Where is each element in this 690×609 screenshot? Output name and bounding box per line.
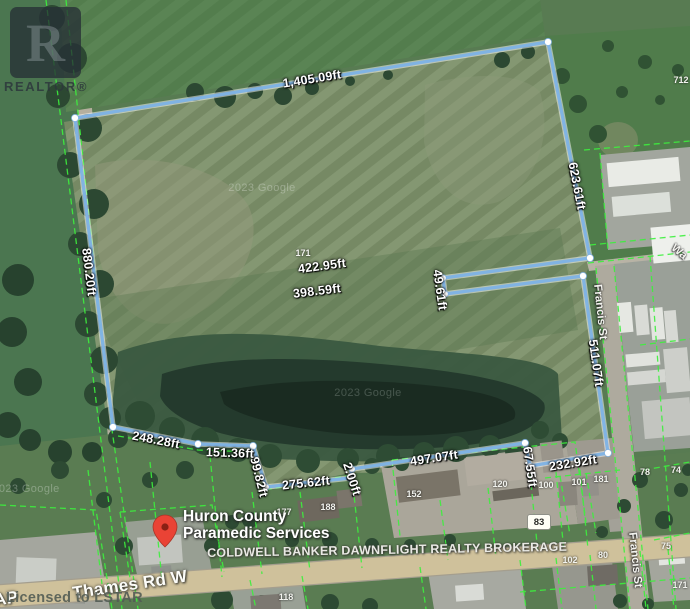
license-watermark: Licensed to LSTAR	[6, 590, 143, 606]
lot-number-field: 171	[295, 248, 310, 258]
realtor-logo: R	[10, 7, 81, 78]
lot-number: 101	[571, 477, 586, 487]
route-shield-number: 83	[534, 517, 545, 528]
measurement-south-small: 151.36ft	[206, 445, 255, 461]
lot-number: 181	[593, 474, 608, 484]
poi-name-line2: Paramedic Services	[183, 526, 330, 543]
route-shield: 83	[527, 514, 551, 530]
satellite-listing-map[interactable]: 1,405.09ft 623.61ft 880.20ft 422.95ft 39…	[0, 0, 690, 609]
lot-number: 78	[640, 467, 650, 477]
google-watermark: 2023 Google	[228, 182, 295, 194]
realtor-logo-letter: R	[26, 16, 65, 70]
lot-number: 80	[598, 550, 608, 560]
lot-number: 75	[661, 541, 671, 551]
google-watermark: 2023 Google	[334, 387, 401, 399]
poi-name-line1: Huron County	[183, 509, 330, 526]
map-canvas[interactable]	[0, 0, 690, 609]
lot-number: 74	[671, 465, 681, 475]
lot-number: 100	[538, 480, 553, 490]
lot-number: 118	[279, 592, 294, 602]
realtor-wordmark: REALTOR®	[2, 79, 90, 94]
lot-number: 152	[406, 489, 421, 499]
lot-number: 120	[492, 479, 507, 489]
poi-label[interactable]: Huron County Paramedic Services	[183, 509, 330, 542]
google-watermark: 2023 Google	[0, 483, 60, 495]
lot-number: 102	[562, 555, 577, 565]
lot-number: 171	[672, 580, 687, 590]
lot-number: 712	[673, 75, 688, 85]
